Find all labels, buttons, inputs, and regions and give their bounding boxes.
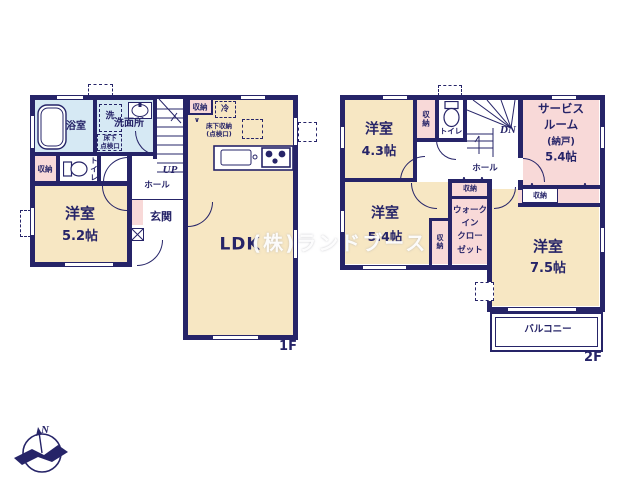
closet-open-mark-2f-b: ∧ [479, 175, 485, 183]
hall-label-2f: ホール [472, 164, 498, 175]
closet-a-label: 収納 [421, 111, 432, 128]
toilet-door-arc-2f [436, 140, 456, 160]
stairs-dn-label: DN [500, 124, 516, 138]
room-bedroom-75 [492, 207, 599, 306]
bedroom43-size: 4.3帖 [362, 143, 397, 159]
floor2-label: 2F [584, 350, 602, 366]
closet-open-mark-2f-c: ∧ [529, 181, 535, 189]
watermark: (株)ランドブース [252, 227, 427, 256]
closet-b-label: 収納 [533, 192, 547, 201]
floorplan-canvas: 浴室 洗 洗面所 床下 点検口 収納 トイレ 洋室 5.2帖 UP ホール 玄関… [0, 0, 640, 480]
room-bedroom-43 [345, 100, 413, 178]
service-room-label: サービス ルーム (納戸) 5.4帖 [538, 101, 584, 166]
balcony-label: バルコニー [524, 324, 571, 336]
compass: N [8, 424, 72, 476]
wic-label: ウォーク イン クロー ゼット [453, 205, 487, 258]
toilet-label-2f: トイレ [440, 126, 463, 135]
bedroom75-name: 洋室 [533, 238, 563, 257]
closet-open-mark-2f-a: ∧ [461, 175, 467, 183]
closet-c-label: 収納 [435, 234, 445, 250]
bedroom75-size: 7.5帖 [530, 261, 566, 277]
ext-equipment-box-top-2f [438, 85, 462, 96]
equipment-box-2f [475, 282, 494, 301]
toilet-icon-2f [442, 101, 461, 128]
closet-open-mark-2f-d: ∧ [582, 181, 588, 189]
bedroom43-name: 洋室 [365, 121, 393, 139]
compass-north-label: N [40, 424, 50, 436]
bedroom54-name: 洋室 [371, 205, 399, 223]
wic-closet-label: 収納 [463, 185, 477, 194]
